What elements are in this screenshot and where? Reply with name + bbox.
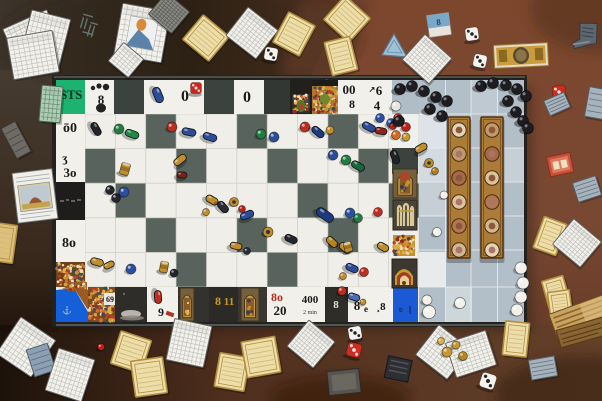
svg-text:8: 8 [349, 97, 355, 111]
svg-text:8o: 8o [62, 236, 76, 251]
svg-text:8: 8 [215, 294, 221, 308]
svg-text:0: 0 [243, 89, 251, 106]
svg-text:ʒ: ʒ [62, 151, 68, 165]
svg-text:8: 8 [333, 299, 339, 311]
svg-text:3o: 3o [64, 165, 77, 180]
svg-text:ʋ: ʋ [399, 305, 403, 314]
svg-text:ō0: ō0 [63, 121, 77, 136]
svg-text:9: 9 [158, 305, 164, 319]
svg-text:0: 0 [181, 88, 189, 105]
svg-text:6: 6 [376, 83, 383, 98]
svg-text:¸8: ¸8 [376, 301, 386, 313]
svg-text:ʼ: ʼ [123, 292, 125, 300]
svg-text:11: 11 [224, 296, 234, 308]
svg-text:e: e [364, 304, 368, 314]
svg-text:400: 400 [302, 294, 319, 306]
svg-text:20: 20 [274, 303, 287, 318]
svg-text:↗: ↗ [369, 85, 376, 94]
svg-text:8o: 8o [271, 290, 283, 304]
svg-text:⚓: ⚓ [62, 305, 72, 315]
svg-text:4: 4 [374, 98, 381, 113]
svg-text:00: 00 [343, 82, 356, 97]
svg-text:2 min: 2 min [303, 310, 317, 316]
svg-text:69: 69 [106, 295, 114, 304]
